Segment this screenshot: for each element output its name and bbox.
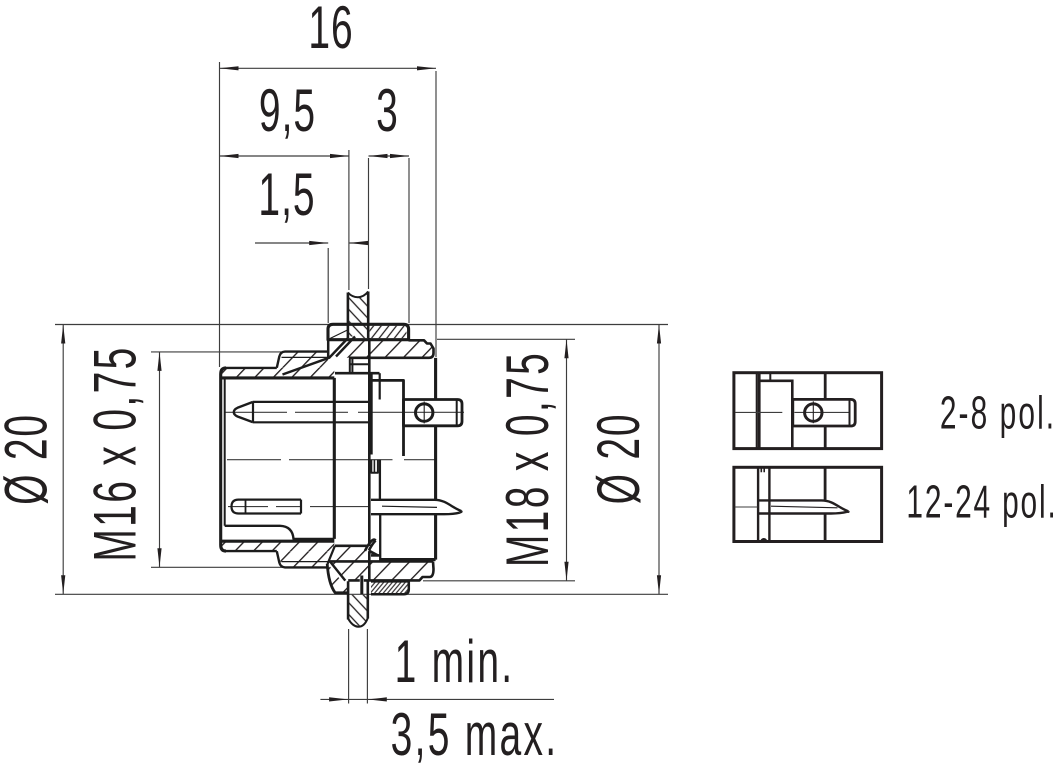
svg-text:2-8 pol.: 2-8 pol. [940,388,1053,439]
svg-text:12-24 pol.: 12-24 pol. [906,477,1053,528]
svg-text:Ø 20: Ø 20 [584,413,652,505]
svg-text:16: 16 [308,0,353,61]
svg-text:3,5 max.: 3,5 max. [391,700,559,768]
svg-text:Ø 20: Ø 20 [0,413,60,505]
svg-text:1 min.: 1 min. [395,627,515,695]
svg-text:3: 3 [376,76,399,144]
svg-text:9,5: 9,5 [259,76,316,144]
svg-text:M18 x 0,75: M18 x 0,75 [493,351,561,567]
svg-text:M16 x 0,75: M16 x 0,75 [81,345,149,561]
svg-text:1,5: 1,5 [258,160,315,228]
